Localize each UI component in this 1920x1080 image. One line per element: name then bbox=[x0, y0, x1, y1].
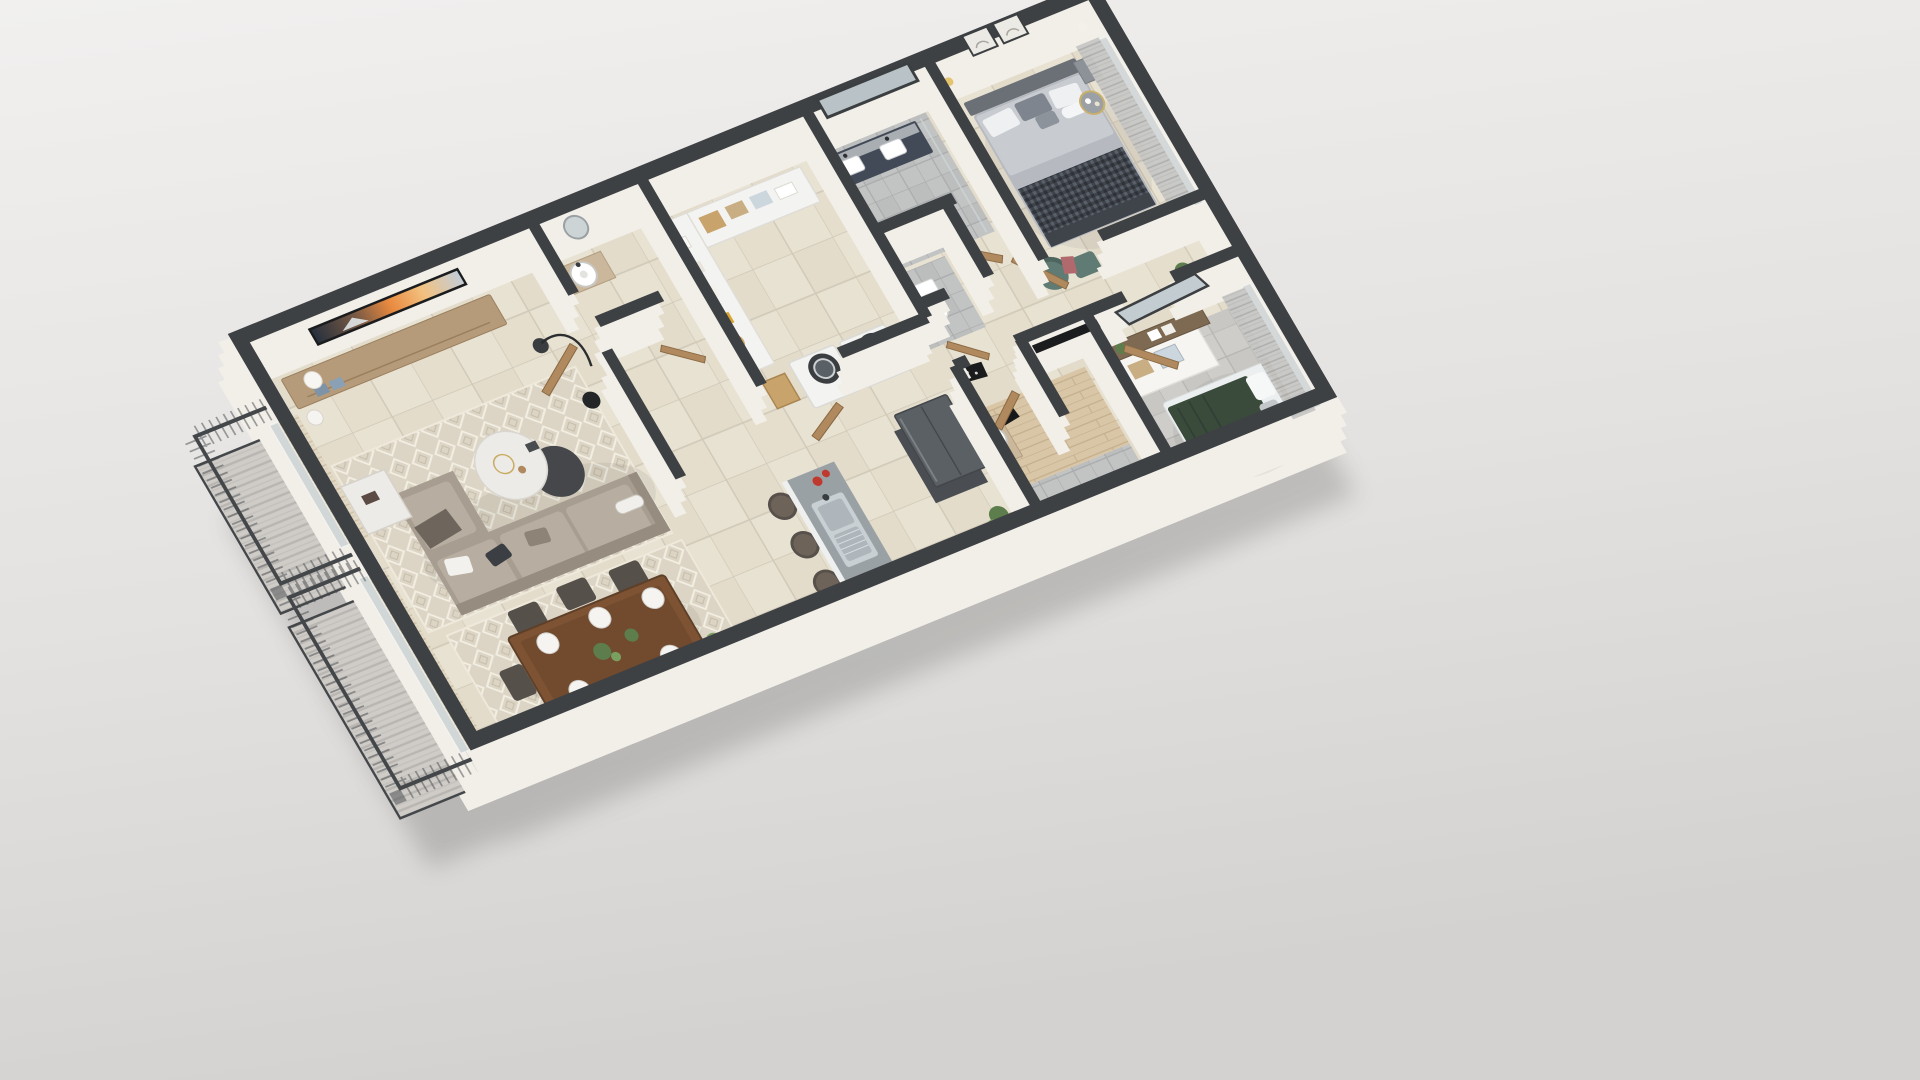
floor-plan-stage bbox=[0, 0, 1920, 1080]
apartment-3d-render bbox=[0, 0, 1920, 1080]
